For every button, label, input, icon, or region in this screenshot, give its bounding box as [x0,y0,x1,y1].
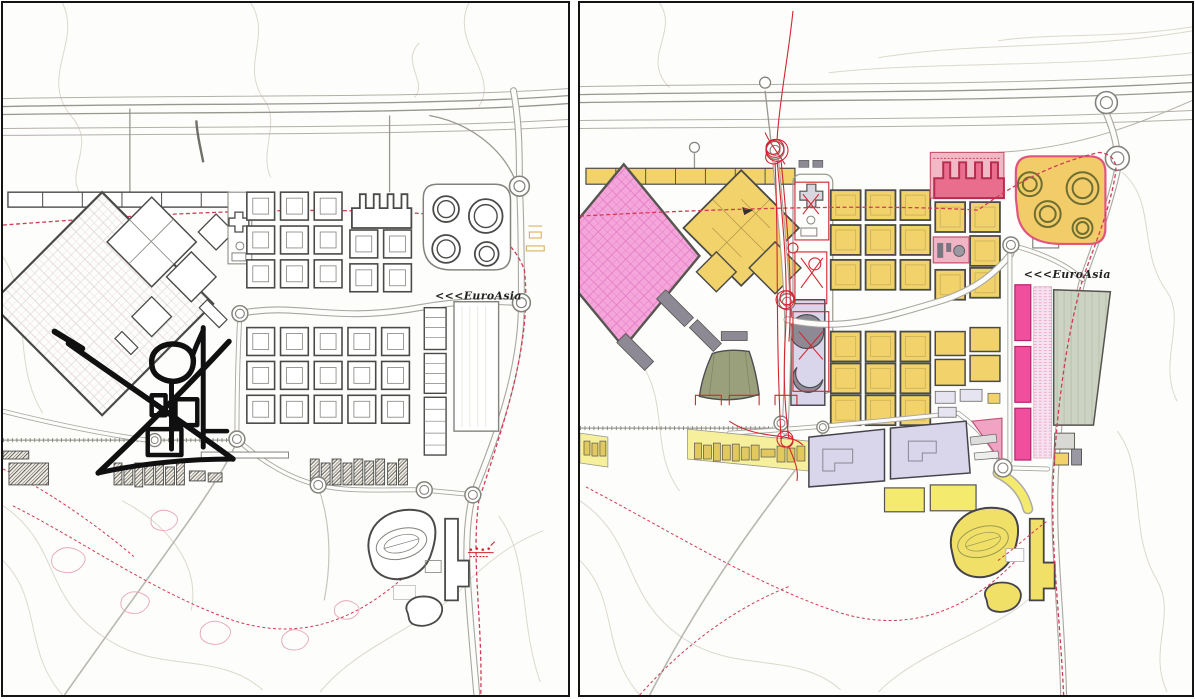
vegetation-outlines [52,510,360,650]
highway-corridor [580,75,1192,169]
south-housing-rows [3,451,407,487]
yellow-bars [885,473,1028,512]
euroasia-label-right: <<<EuroAsia [1024,268,1111,281]
caravan-annotation [468,542,495,557]
small-site-annotation [526,226,544,251]
purple-block-civic [790,300,825,406]
euroasia-label-left: <<<EuroAsia [435,290,522,303]
industrial-bars-and-parking [424,302,498,455]
highway-corridor [3,89,568,193]
tank-farm-colored [1016,156,1106,244]
comb-building [352,194,411,228]
left-plan-drawing: <<<EuroAsia [3,3,568,695]
scanned-plan-pair: <<<EuroAsia [0,0,1195,699]
right-plan-drawing: <<<EuroAsia [580,3,1192,695]
grandstand-l-building [1030,519,1055,601]
equipment-block [933,237,969,263]
stadium-group [368,510,468,626]
left-plan-panel: <<<EuroAsia [1,1,570,697]
pond-blob [406,596,442,625]
right-plan-panel: <<<EuroAsia [578,1,1194,697]
hot-pink-bars [1015,285,1052,460]
fan-building [699,350,759,400]
stadium-group-colored [951,508,1055,612]
pond-blob [985,582,1021,611]
tank-farm [423,184,510,270]
comb-building-pink [930,152,1004,198]
